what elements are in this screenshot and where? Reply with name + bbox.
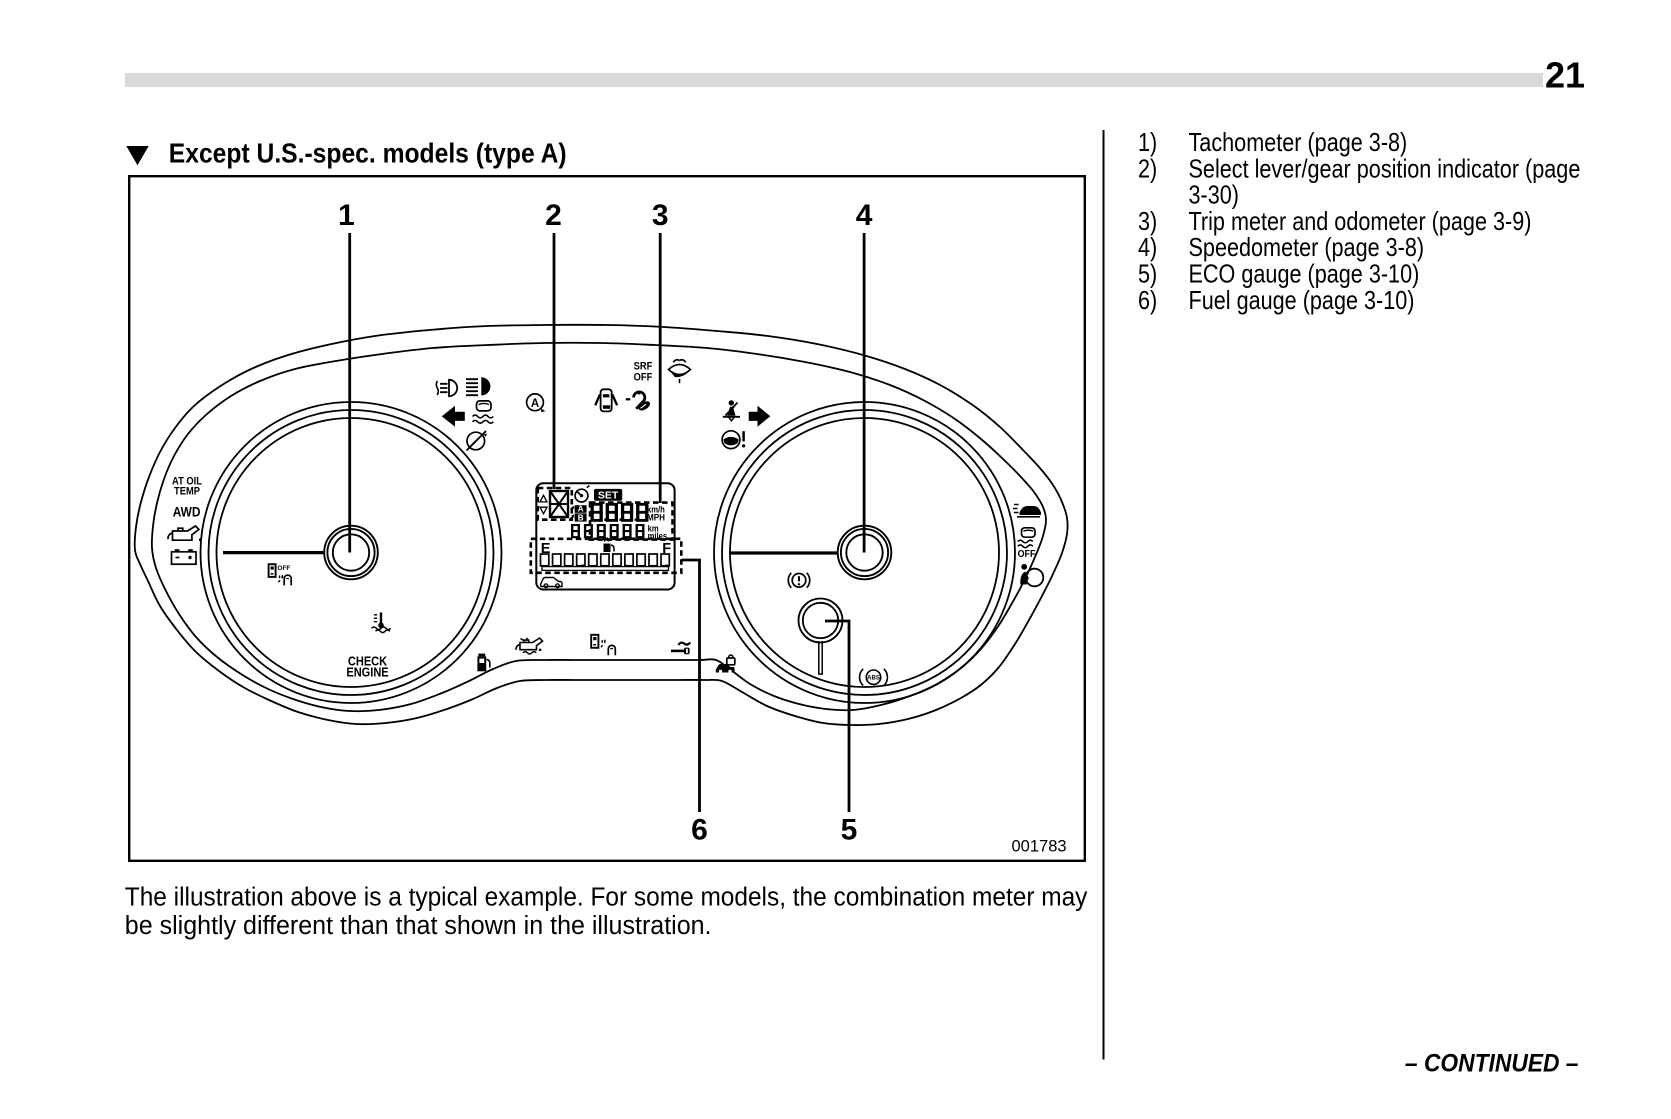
svg-text:21: 21 — [1545, 55, 1585, 96]
svg-text:6: 6 — [691, 813, 708, 846]
svg-text:A: A — [578, 505, 584, 514]
svg-text:B: B — [578, 514, 584, 523]
svg-text:1: 1 — [338, 199, 355, 232]
svg-text:4): 4) — [1138, 233, 1157, 262]
svg-text:5: 5 — [841, 813, 858, 846]
svg-text:OFF: OFF — [1018, 549, 1036, 561]
svg-text:4: 4 — [856, 199, 873, 232]
svg-text:AWD: AWD — [173, 504, 201, 520]
svg-text:2): 2) — [1138, 154, 1157, 183]
svg-text:5): 5) — [1138, 260, 1157, 289]
svg-text:1): 1) — [1138, 128, 1157, 157]
svg-text:ECO gauge (page 3-10): ECO gauge (page 3-10) — [1189, 260, 1420, 289]
svg-text:ENGINE: ENGINE — [346, 665, 388, 680]
svg-text:3: 3 — [652, 199, 669, 232]
svg-text:2: 2 — [545, 199, 562, 232]
svg-text:Fuel gauge (page 3-10): Fuel gauge (page 3-10) — [1189, 286, 1415, 315]
svg-text:Select lever/gear position ind: Select lever/gear position indicator (pa… — [1189, 154, 1581, 183]
svg-text:OFF: OFF — [634, 372, 653, 384]
svg-text:miles: miles — [648, 530, 668, 541]
svg-text:The illustration above is a ty: The illustration above is a typical exam… — [125, 883, 1088, 912]
svg-text:Tachometer (page 3-8): Tachometer (page 3-8) — [1189, 128, 1408, 157]
svg-text:MPH: MPH — [647, 512, 665, 523]
svg-text:OFF: OFF — [277, 565, 290, 572]
svg-text:3): 3) — [1138, 207, 1157, 236]
svg-text:– CONTINUED –: – CONTINUED – — [1405, 1050, 1579, 1078]
svg-text:001783: 001783 — [1012, 838, 1067, 856]
svg-text:SET: SET — [598, 490, 619, 502]
svg-text:Speedometer (page 3-8): Speedometer (page 3-8) — [1189, 233, 1425, 262]
svg-text:TEMP: TEMP — [174, 486, 200, 498]
svg-text:Trip meter and odometer (page: Trip meter and odometer (page 3-9) — [1189, 207, 1532, 236]
svg-text:3-30): 3-30) — [1189, 181, 1239, 210]
svg-text:A: A — [531, 398, 539, 410]
svg-text:6): 6) — [1138, 286, 1157, 315]
svg-text:Except U.S.-spec. models (type: Except U.S.-spec. models (type A) — [169, 137, 567, 169]
svg-text:ABS: ABS — [867, 675, 880, 681]
svg-text:be slightly different than tha: be slightly different than that shown in… — [125, 912, 712, 941]
